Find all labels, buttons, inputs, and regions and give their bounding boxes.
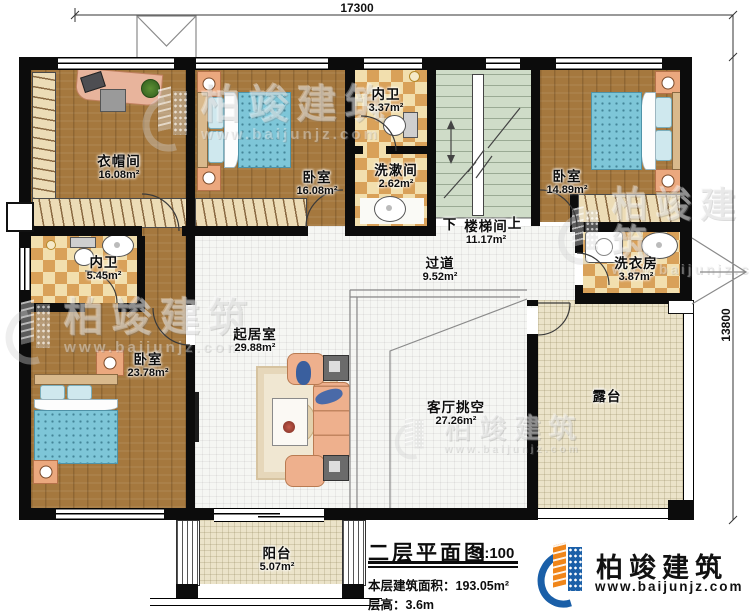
bed-blanket bbox=[640, 92, 656, 170]
wall-segment bbox=[345, 226, 436, 236]
wall-segment bbox=[186, 345, 195, 508]
side-table-symbol bbox=[323, 355, 349, 381]
watermark: 柏竣建筑 www.baijunjz.com bbox=[6, 297, 256, 356]
room-label-cloakroom: 衣帽间 16.08m² bbox=[97, 155, 141, 182]
window bbox=[364, 57, 422, 70]
room-name: 露台 bbox=[593, 390, 622, 404]
watermark: 柏竣建筑 www.baijunjz.com bbox=[143, 84, 393, 143]
lamp-icon bbox=[662, 76, 675, 89]
floor-height-value: 3.6m bbox=[406, 598, 435, 612]
side-table-top bbox=[329, 361, 340, 372]
room-name: 洗衣房 bbox=[614, 257, 658, 271]
room-label-stairwell: 楼梯间 11.17m² bbox=[464, 220, 508, 247]
wall-segment bbox=[355, 146, 363, 154]
lamp-icon bbox=[104, 357, 117, 370]
floor-height-label: 层高： bbox=[368, 598, 406, 612]
person-figure bbox=[296, 361, 311, 385]
watermark: 柏竣建筑 www.baijunjz.com bbox=[386, 406, 584, 464]
terrace-railing bbox=[538, 508, 670, 519]
room-area: 29.88m² bbox=[233, 342, 277, 355]
floor-area-value: 193.05m² bbox=[456, 579, 510, 593]
room-label-laundry: 洗衣房 3.87m² bbox=[614, 257, 658, 284]
pillow bbox=[655, 97, 672, 128]
wall-segment bbox=[186, 226, 195, 305]
pillow bbox=[40, 385, 65, 400]
brand-website: www.baijunjz.com bbox=[595, 579, 744, 594]
wall-segment bbox=[137, 236, 145, 303]
window bbox=[58, 57, 174, 70]
armchair-symbol bbox=[285, 455, 325, 487]
balcony-railing bbox=[150, 598, 382, 606]
room-name: 起居室 bbox=[233, 328, 277, 342]
title-underline bbox=[368, 566, 518, 568]
room-area: 27.26m² bbox=[427, 415, 485, 428]
room-label-balcony: 阳台 5.07m² bbox=[260, 547, 295, 574]
stair-down-label: 下 bbox=[443, 218, 458, 232]
room-area: 9.52m² bbox=[423, 271, 458, 284]
toilet-tank bbox=[70, 237, 96, 248]
pillow bbox=[655, 130, 672, 161]
wall-segment bbox=[19, 226, 142, 236]
room-name: 客厅挑空 bbox=[427, 401, 485, 415]
room-name: 卧室 bbox=[128, 353, 169, 367]
room-label-bedroom1: 卧室 16.08m² bbox=[297, 171, 338, 198]
dimension-top: 17300 bbox=[340, 1, 373, 15]
room-label-bath-left: 内卫 5.45m² bbox=[87, 256, 122, 283]
plan-scale: 1:100 bbox=[476, 545, 514, 562]
terrace-corner-post bbox=[668, 500, 694, 520]
room-label-bedroom2: 卧室 14.89m² bbox=[547, 170, 588, 197]
brand-logo-icon bbox=[143, 85, 195, 143]
room-area: 3.87m² bbox=[614, 271, 658, 284]
bed-headboard bbox=[34, 374, 118, 385]
room-area: 5.45m² bbox=[87, 270, 122, 283]
room-label-void: 客厅挑空 27.26m² bbox=[427, 401, 485, 428]
room-name: 内卫 bbox=[87, 256, 122, 270]
wall-terrace-left bbox=[527, 300, 538, 306]
watermark-text: 柏竣建筑 bbox=[612, 186, 750, 262]
nightstand bbox=[655, 71, 681, 94]
ceiling-light-icon bbox=[46, 240, 56, 250]
room-name: 过道 bbox=[423, 257, 458, 271]
stair-up-label: 上 bbox=[508, 217, 523, 231]
room-label-hallway: 过道 9.52m² bbox=[423, 257, 458, 284]
monitor-icon bbox=[100, 89, 126, 112]
wardrobe-cloakroom-left bbox=[32, 72, 56, 200]
room-area: 23.78m² bbox=[128, 367, 169, 380]
dimension-right: 13800 bbox=[719, 308, 733, 341]
wardrobe-cloakroom-bottom bbox=[32, 198, 188, 228]
room-area: 16.08m² bbox=[297, 185, 338, 198]
wardrobe-bedroom1 bbox=[195, 198, 307, 228]
sliding-door bbox=[214, 508, 324, 522]
window bbox=[556, 57, 662, 70]
wall-segment bbox=[182, 226, 308, 236]
brand-logo-icon bbox=[6, 298, 58, 356]
sink-drain bbox=[386, 205, 392, 211]
side-table-symbol bbox=[323, 455, 349, 481]
floor-terrace bbox=[538, 300, 684, 508]
room-area: 2.62m² bbox=[374, 178, 418, 191]
duct-niche bbox=[6, 202, 34, 232]
room-name: 洗漱间 bbox=[374, 164, 418, 178]
balcony-column bbox=[176, 520, 200, 586]
room-area: 14.89m² bbox=[547, 184, 588, 197]
room-area: 5.07m² bbox=[260, 561, 295, 574]
wall-segment bbox=[575, 285, 583, 293]
room-name: 楼梯间 bbox=[464, 220, 508, 234]
ceiling-light-icon bbox=[409, 71, 420, 82]
room-label-living: 起居室 29.88m² bbox=[233, 328, 277, 355]
terrace-railing bbox=[683, 310, 694, 508]
nightstand bbox=[33, 460, 58, 484]
room-label-bedroom3: 卧室 23.78m² bbox=[128, 353, 169, 380]
bed-symbol bbox=[591, 92, 642, 170]
floor-area-label: 本层建筑面积： bbox=[368, 579, 456, 593]
bed-symbol bbox=[34, 410, 118, 464]
room-area: 16.08m² bbox=[97, 169, 141, 182]
wall-segment bbox=[427, 70, 436, 226]
room-area: 11.17m² bbox=[464, 234, 508, 247]
brand-logo-icon bbox=[558, 205, 603, 257]
balcony-column bbox=[342, 520, 366, 586]
brand-logo-icon bbox=[538, 541, 590, 603]
window bbox=[19, 248, 31, 290]
window bbox=[56, 508, 164, 520]
floor-height-line: 层高：3.6m bbox=[368, 594, 434, 612]
room-name: 衣帽间 bbox=[97, 155, 141, 169]
sink-symbol bbox=[374, 196, 406, 222]
floor-area-line: 本层建筑面积：193.05m² bbox=[368, 575, 509, 594]
terrace-post bbox=[668, 300, 694, 314]
title-underline bbox=[368, 561, 518, 564]
lamp-icon bbox=[203, 172, 216, 185]
room-label-bath-top: 内卫 3.37m² bbox=[369, 88, 404, 115]
watermark-text: 柏竣建筑 bbox=[201, 84, 393, 126]
room-label-washroom: 洗漱间 2.62m² bbox=[374, 164, 418, 191]
wall-segment bbox=[386, 146, 427, 154]
room-name: 卧室 bbox=[297, 171, 338, 185]
table-flowers bbox=[283, 421, 295, 433]
floor-plan: 柏竣建筑 www.baijunjz.com 柏竣建筑 www.baijunjz.… bbox=[0, 0, 750, 612]
watermark-url: www.baijunjz.com bbox=[444, 444, 584, 455]
window bbox=[486, 57, 520, 70]
watermark-url: www.baijunjz.com bbox=[201, 126, 393, 143]
room-label-terrace: 露台 bbox=[593, 390, 622, 404]
room-area: 3.37m² bbox=[369, 102, 404, 115]
pillow bbox=[67, 385, 92, 400]
brand-logo-icon bbox=[395, 416, 429, 454]
room-name: 卧室 bbox=[547, 170, 588, 184]
window bbox=[196, 57, 328, 70]
wall-segment bbox=[531, 70, 540, 226]
room-name: 阳台 bbox=[260, 547, 295, 561]
room-name: 内卫 bbox=[369, 88, 404, 102]
stair-railing bbox=[472, 74, 484, 216]
sink-symbol bbox=[102, 234, 134, 257]
side-table-top bbox=[329, 461, 340, 472]
sink-drain bbox=[114, 242, 120, 248]
lamp-icon bbox=[39, 466, 52, 479]
watermark-text: 柏竣建筑 bbox=[64, 297, 256, 339]
nightstand bbox=[197, 165, 221, 191]
